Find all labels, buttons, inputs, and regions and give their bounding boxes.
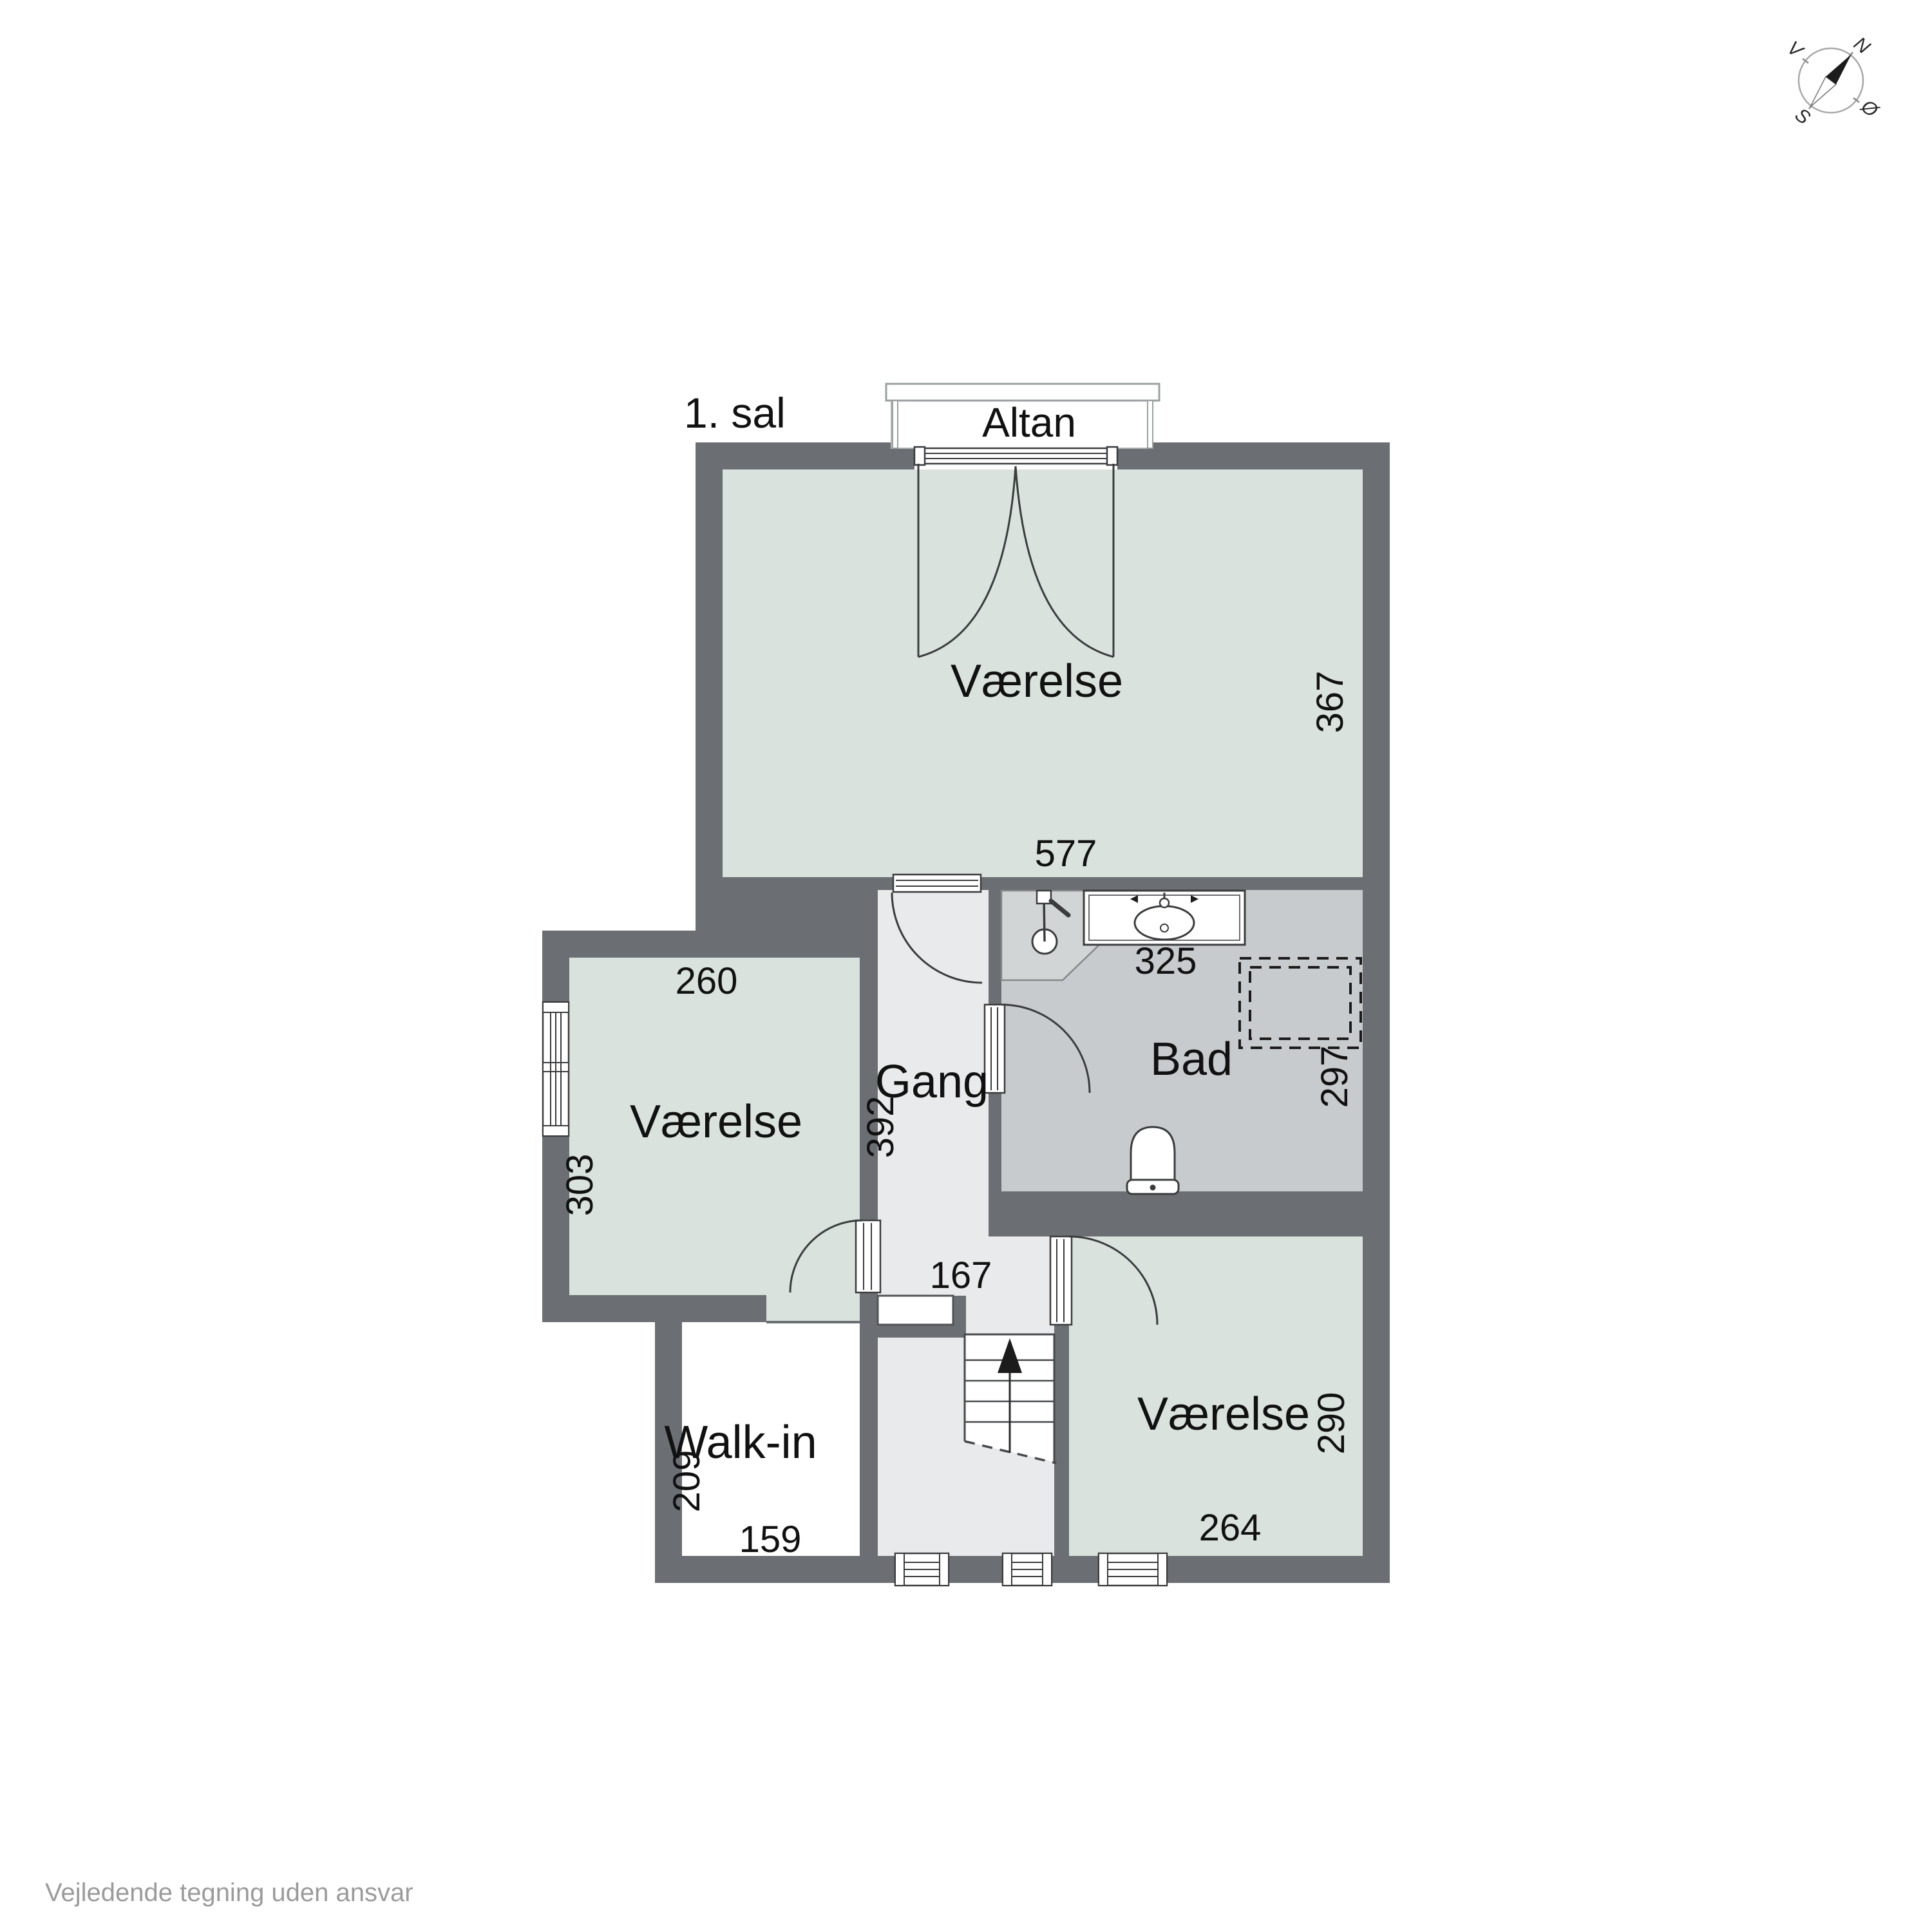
main-room-height-dim: 367 bbox=[1309, 671, 1351, 734]
floor-title: 1. sal bbox=[684, 389, 786, 437]
compass-label-east: Ø bbox=[1857, 95, 1883, 122]
balcony-door-track bbox=[914, 448, 1117, 464]
compass-label-north: N bbox=[1850, 33, 1874, 59]
sink-faucet bbox=[1160, 898, 1169, 907]
wall-below-alcove bbox=[869, 1325, 965, 1338]
bottom-room-width-dim: 264 bbox=[1199, 1507, 1262, 1549]
window-left-room bbox=[543, 1002, 569, 1136]
sink-drain bbox=[1160, 924, 1168, 932]
bathroom-label: Bad bbox=[1150, 1034, 1233, 1085]
bathroom-width-dim: 325 bbox=[1135, 940, 1197, 982]
left-room-height-dim: 303 bbox=[559, 1154, 601, 1217]
hallway-length-dim: 392 bbox=[860, 1096, 902, 1159]
toilet-icon bbox=[1127, 1127, 1179, 1194]
bottom-room-height-dim: 290 bbox=[1311, 1392, 1352, 1455]
floor-plan-page: N Ø S V 1. sal Altan Værelse 577 367 Vær… bbox=[0, 0, 1932, 1932]
walkin-height-dim: 209 bbox=[666, 1450, 708, 1513]
wall-mainroom-bottom bbox=[723, 877, 1363, 890]
window-stairhall-left bbox=[895, 1553, 949, 1586]
main-room-width-dim: 577 bbox=[1035, 833, 1097, 875]
balcony-door-jamb-left bbox=[914, 447, 925, 465]
wall-right bbox=[1363, 442, 1390, 1583]
balcony-rail-right bbox=[1148, 401, 1153, 448]
disclaimer-text: Vejledende tegning uden ansvar bbox=[45, 1879, 413, 1907]
window-bottom-room bbox=[1099, 1553, 1167, 1586]
left-room-label: Værelse bbox=[630, 1096, 802, 1148]
hallway-alcove bbox=[878, 1296, 953, 1325]
wall-alcove-stub bbox=[953, 1296, 966, 1338]
wall-top-right-of-balcony bbox=[1117, 442, 1390, 469]
balcony-label: Altan bbox=[982, 399, 1076, 446]
balcony-rail-top bbox=[886, 384, 1159, 401]
wall-bath-bottom bbox=[989, 1191, 1363, 1236]
compass: N Ø S V bbox=[1783, 33, 1883, 129]
main-room-label: Værelse bbox=[951, 656, 1123, 707]
hallway-width-dim: 167 bbox=[930, 1255, 992, 1296]
wall-top-left-of-balcony bbox=[696, 442, 914, 469]
walkin-width-dim: 159 bbox=[739, 1519, 802, 1560]
staircase bbox=[965, 1334, 1056, 1463]
wall-leftroom-bottom bbox=[542, 1295, 766, 1322]
left-room-width-dim: 260 bbox=[676, 960, 738, 1002]
sink-basin bbox=[1135, 906, 1194, 940]
sink-vanity bbox=[1084, 891, 1245, 945]
balcony-door-jamb-right bbox=[1107, 447, 1117, 465]
floor-plan-drawing: N Ø S V 1. sal Altan Værelse 577 367 Vær… bbox=[0, 0, 1932, 1932]
bathroom-height-dim: 297 bbox=[1314, 1046, 1356, 1108]
bottom-room-label: Værelse bbox=[1137, 1388, 1310, 1440]
window-stairhall-right bbox=[1003, 1553, 1052, 1586]
balcony-rail-left bbox=[893, 401, 898, 448]
